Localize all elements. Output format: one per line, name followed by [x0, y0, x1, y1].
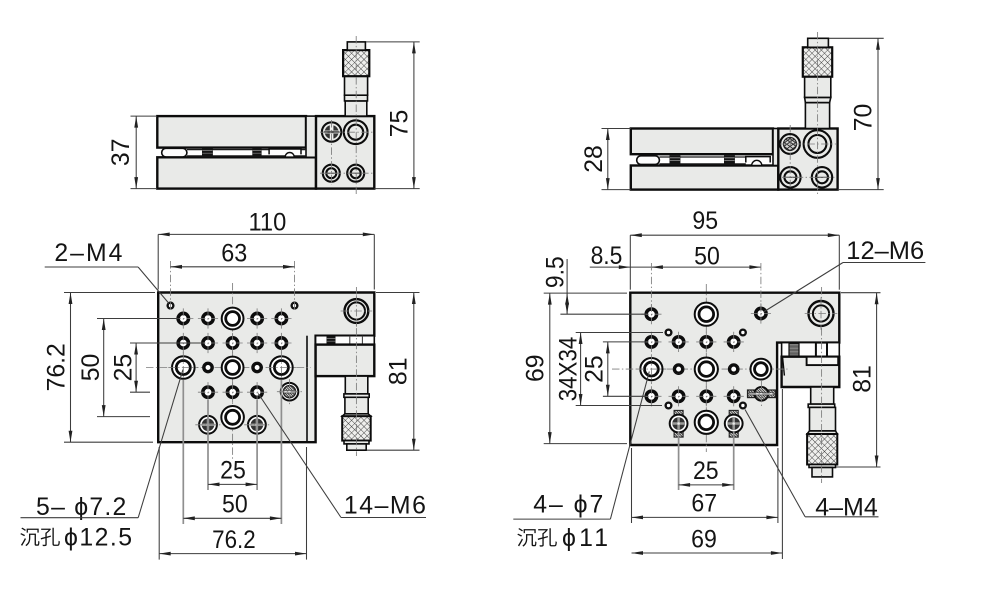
svg-text:ϕ12.5: ϕ12.5 — [64, 525, 132, 552]
svg-text:69: 69 — [691, 527, 717, 554]
svg-text:34X34: 34X34 — [555, 337, 582, 402]
svg-text:76.2: 76.2 — [212, 527, 256, 554]
svg-text:50: 50 — [222, 492, 248, 519]
svg-text:70: 70 — [851, 104, 878, 132]
svg-text:8.5: 8.5 — [591, 243, 623, 270]
svg-text:63: 63 — [221, 241, 247, 268]
svg-text:5– ϕ7.2: 5– ϕ7.2 — [36, 494, 126, 521]
svg-text:28: 28 — [581, 145, 608, 173]
svg-text:12–M6: 12–M6 — [846, 238, 924, 265]
svg-text:76.2: 76.2 — [43, 343, 70, 391]
svg-text:4–M4: 4–M4 — [815, 494, 878, 521]
svg-text:9.5: 9.5 — [543, 256, 570, 288]
svg-text:81: 81 — [849, 365, 876, 393]
svg-text:4– ϕ7: 4– ϕ7 — [533, 492, 603, 519]
svg-text:95: 95 — [692, 208, 718, 235]
svg-text:67: 67 — [691, 491, 717, 518]
svg-text:37: 37 — [108, 139, 135, 167]
svg-text:2–M4: 2–M4 — [54, 240, 122, 267]
svg-text:25: 25 — [582, 355, 609, 383]
svg-text:50: 50 — [694, 244, 720, 271]
svg-text:25: 25 — [693, 458, 719, 485]
svg-text:50: 50 — [78, 354, 105, 382]
svg-text:75: 75 — [387, 110, 414, 138]
svg-text:14–M6: 14–M6 — [344, 493, 426, 520]
svg-text:25: 25 — [111, 354, 138, 382]
svg-text:81: 81 — [386, 358, 413, 386]
svg-text:69: 69 — [523, 354, 550, 382]
svg-text:25: 25 — [220, 458, 246, 485]
svg-text:110: 110 — [249, 210, 287, 237]
svg-text:ϕ11: ϕ11 — [562, 525, 608, 552]
